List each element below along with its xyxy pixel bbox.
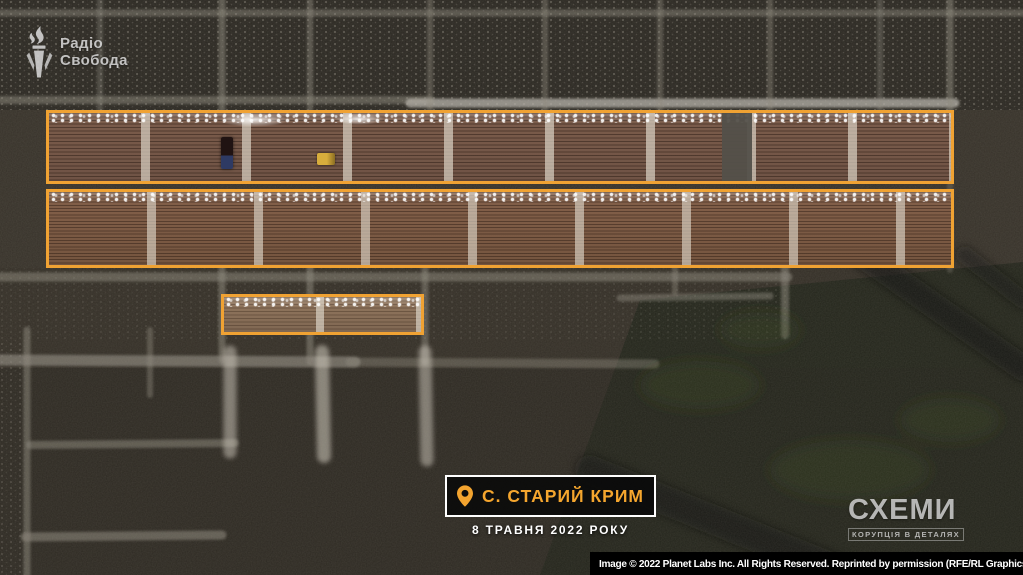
highlight-box-2 (46, 189, 954, 268)
location-pin-icon (457, 485, 473, 507)
schemes-title: СХЕМИ (848, 497, 964, 524)
dark-plot (722, 113, 752, 181)
radio-svoboda-line1: Радіо (60, 35, 128, 52)
radio-svoboda-line2: Свобода (60, 52, 128, 69)
satellite-graphic: Радіо Свобода С. СТАРИЙ КРИМ 8 ТРАВНЯ 20… (0, 0, 1023, 575)
schemes-logo: СХЕМИ КОРУПЦІЯ В ДЕТАЛЯХ (848, 497, 964, 542)
highlight-box-1 (46, 110, 954, 184)
schemes-tagline: КОРУПЦІЯ В ДЕТАЛЯХ (848, 528, 964, 541)
trench-strip-2 (49, 192, 951, 265)
torch-icon (26, 26, 53, 78)
attribution-text: Image © 2022 Planet Labs Inc. All Rights… (599, 558, 1023, 570)
location-date: 8 ТРАВНЯ 2022 РОКУ (425, 523, 676, 537)
highlight-box-3 (221, 294, 424, 335)
trench-strip-3 (224, 297, 421, 332)
vehicle-excavator (317, 153, 335, 165)
debris-patch (219, 113, 289, 127)
attribution-bar: Image © 2022 Planet Labs Inc. All Rights… (590, 552, 1023, 575)
vehicle-dark (221, 137, 233, 169)
location-name: С. СТАРИЙ КРИМ (482, 486, 644, 507)
debris-patch (334, 113, 384, 125)
trench-strip-1 (49, 113, 951, 181)
radio-svoboda-logo: Радіо Свобода (26, 26, 128, 78)
location-label: С. СТАРИЙ КРИМ (445, 475, 656, 517)
